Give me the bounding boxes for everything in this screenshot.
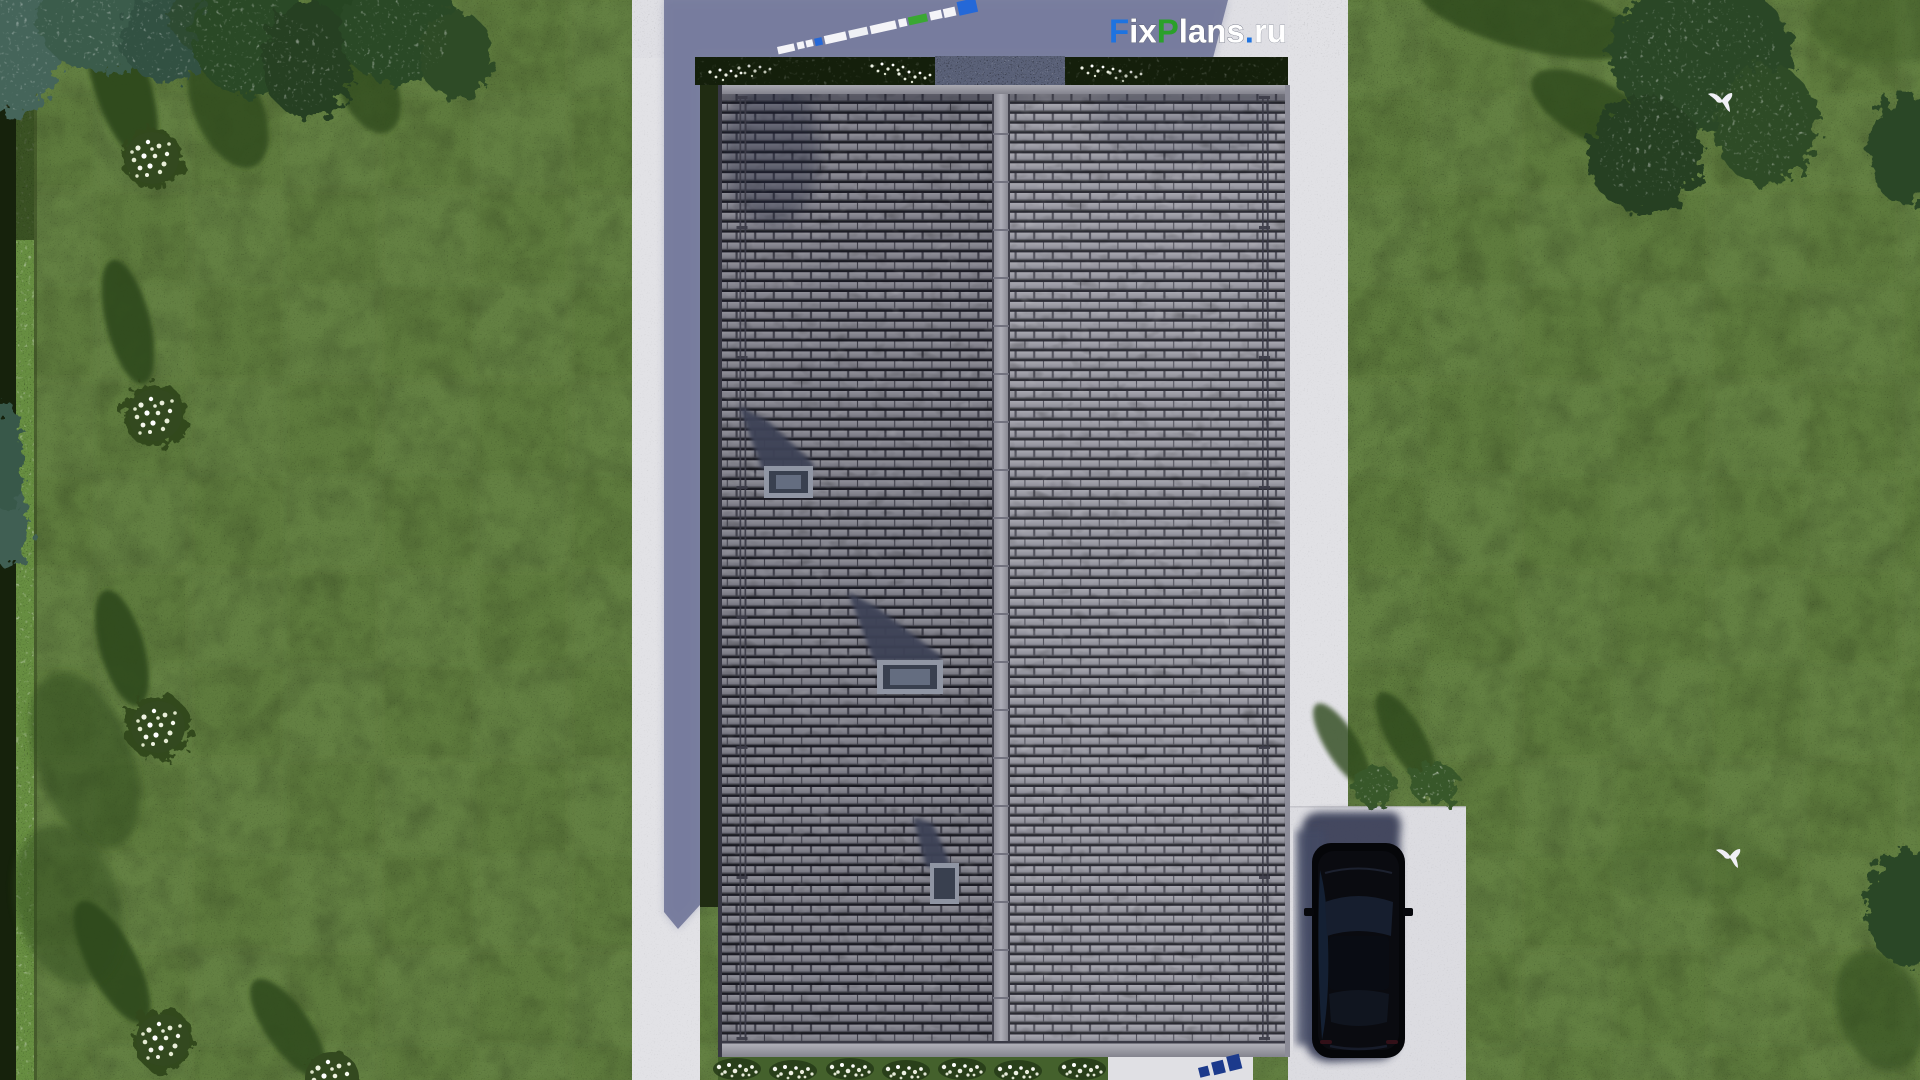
svg-text:FixPlans.ru: FixPlans.ru — [1109, 13, 1287, 50]
